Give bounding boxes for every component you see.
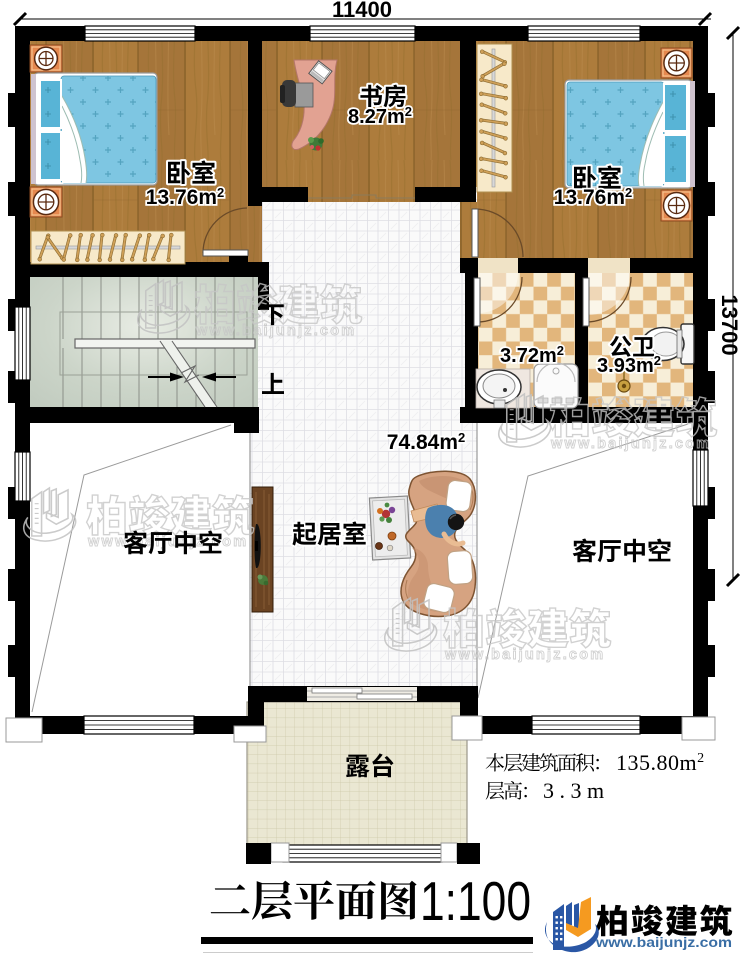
svg-text:13.76m2: 13.76m2	[146, 185, 224, 209]
svg-text:13700: 13700	[717, 294, 742, 355]
svg-text:135.80m2: 135.80m2	[616, 750, 705, 775]
svg-text:74.84m2: 74.84m2	[387, 430, 465, 454]
svg-text:www.baijunjz.com: www.baijunjz.com	[444, 647, 605, 663]
svg-text:www.baijunjz.com: www.baijunjz.com	[87, 534, 248, 550]
svg-text:8.27m2: 8.27m2	[348, 104, 412, 128]
svg-text:1:100: 1:100	[420, 870, 531, 932]
svg-text:www.baijunjz.com: www.baijunjz.com	[195, 323, 356, 339]
svg-text:11400: 11400	[332, 0, 392, 22]
svg-text:13.76m2: 13.76m2	[554, 185, 632, 209]
svg-text:3.3m: 3.3m	[543, 778, 610, 803]
svg-text:www.baijunjz.com: www.baijunjz.com	[595, 934, 732, 950]
svg-text:3.93m2: 3.93m2	[597, 353, 661, 377]
svg-text:www.baijunjz.com: www.baijunjz.com	[550, 436, 711, 452]
svg-text:3.72m2: 3.72m2	[500, 343, 564, 367]
